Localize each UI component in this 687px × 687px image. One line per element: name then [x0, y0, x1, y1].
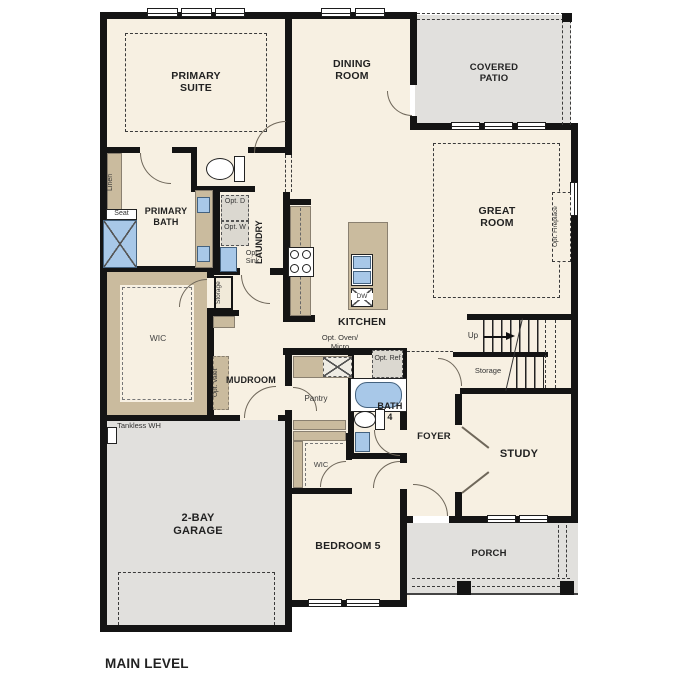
toilet-tank	[234, 156, 245, 182]
wall	[100, 12, 107, 632]
wall	[455, 492, 462, 516]
ceiling-break-line	[407, 351, 453, 353]
wall	[283, 199, 311, 205]
patio-roof-edge	[417, 13, 564, 20]
room-label-pantry: Pantry	[299, 394, 333, 403]
wic5-shelf	[293, 431, 346, 441]
window	[517, 122, 546, 130]
window	[321, 8, 351, 17]
room-label-covered-patio: COVERED PATIO	[458, 62, 530, 84]
wall	[346, 433, 352, 460]
room-label-garage: 2-BAY GARAGE	[160, 512, 236, 538]
wall	[407, 516, 413, 523]
wall	[285, 488, 352, 494]
wall	[283, 315, 315, 322]
laundry-sink	[220, 247, 237, 272]
window	[308, 599, 342, 607]
up-arrow-head	[506, 332, 515, 340]
hall-storage-label: Storage	[216, 278, 231, 308]
wall	[278, 415, 292, 421]
room-label-porch: PORCH	[462, 548, 516, 559]
opt-oven-micro-label: Opt. Oven/ Micro	[312, 334, 368, 351]
window	[147, 8, 178, 17]
dishwasher-label: DW	[351, 293, 373, 300]
toilet-bowl	[354, 411, 376, 428]
porch-slab-edge	[407, 593, 578, 595]
toilet-bowl	[206, 158, 234, 180]
laundry-label: LAUNDRY	[255, 210, 272, 274]
stair-storage-label: Storage	[471, 367, 505, 376]
window	[355, 8, 385, 17]
pantry-shelf	[293, 420, 346, 430]
window	[487, 515, 516, 523]
stair-above-cut	[545, 320, 556, 388]
vanity-sink	[197, 246, 210, 262]
wall	[410, 116, 417, 130]
opt-oven-cabinet	[323, 357, 352, 377]
wall	[460, 388, 578, 394]
burner	[290, 264, 299, 273]
up-arrow-line	[484, 336, 506, 338]
room-label-primary-bath: PRIMARY BATH	[138, 206, 194, 227]
porch-post	[560, 581, 574, 595]
room-label-wic-bedroom5: WIC	[307, 461, 335, 470]
wall	[455, 394, 462, 425]
patio-post	[562, 13, 572, 22]
floor-plan: Linen Seat Opt. D Opt. W Opt. Sink LAUND…	[0, 0, 687, 687]
porch-roof-edge	[558, 525, 567, 577]
tankless-wh-label: Tankless WH	[116, 422, 162, 431]
island-sink	[353, 256, 371, 269]
stair-treads	[516, 357, 544, 388]
shower	[103, 220, 137, 268]
room-label-wic-primary: WIC	[143, 334, 173, 344]
burner	[302, 250, 311, 259]
room-label-foyer: FOYER	[412, 431, 456, 442]
room-label-study: STUDY	[492, 448, 546, 461]
plan-title: MAIN LEVEL	[105, 656, 235, 672]
window	[519, 515, 548, 523]
room-label-dining-room: DINING ROOM	[320, 58, 384, 83]
burner	[290, 250, 299, 259]
wic5-shelf	[293, 441, 303, 488]
wall	[213, 190, 220, 275]
window	[451, 122, 480, 130]
wall	[285, 12, 292, 155]
room-label-mudroom: MUDROOM	[215, 375, 287, 386]
window	[215, 8, 245, 17]
window	[181, 8, 212, 17]
bath4-sink	[355, 432, 370, 452]
window	[346, 599, 380, 607]
room-label-kitchen: KITCHEN	[330, 316, 394, 328]
up-label: Up	[464, 331, 482, 340]
bench	[213, 316, 235, 328]
wall	[400, 489, 407, 607]
cased-opening	[285, 155, 292, 192]
linen-label: Linen	[107, 158, 122, 206]
opt-dryer-label: Opt. D	[222, 198, 248, 206]
vanity-sink	[197, 197, 210, 213]
island-sink	[353, 271, 371, 284]
seat-label: Seat	[106, 210, 137, 218]
opt-ref-label: Opt. Ref	[373, 355, 402, 363]
room-label-primary-suite: PRIMARY SUITE	[160, 70, 232, 95]
wall	[100, 625, 292, 632]
window	[570, 182, 578, 216]
porch-roof-edge	[412, 578, 570, 587]
window	[484, 122, 513, 130]
opt-washer-label: Opt. W	[222, 224, 248, 232]
opt-fireplace-label: Opt. Fireplace	[553, 194, 570, 260]
burner	[302, 264, 311, 273]
garage-door-outline	[118, 572, 275, 625]
room-label-bedroom-5: BEDROOM 5	[306, 540, 390, 552]
room-label-great-room: GREAT ROOM	[462, 205, 532, 230]
wall	[410, 12, 417, 85]
room-label-bath-4: BATH 4	[375, 401, 405, 422]
porch-post	[457, 581, 471, 595]
patio-roof-edge	[562, 15, 571, 125]
